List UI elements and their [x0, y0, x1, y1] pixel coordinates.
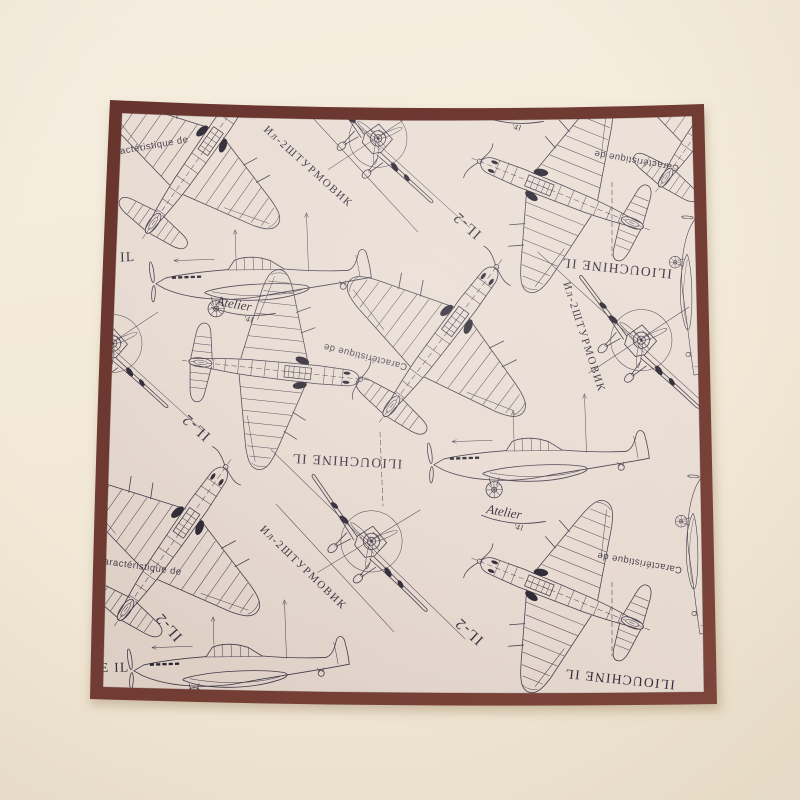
- product-photo: Ил-2ШТУРМОВИК Ил-2ШТУРМОВИК Ил-2ШТУРМОВИ…: [0, 0, 800, 800]
- photo-canvas: Ил-2ШТУРМОВИК Ил-2ШТУРМОВИК Ил-2ШТУРМОВИ…: [0, 0, 800, 800]
- fabric-sheen: [103, 113, 704, 693]
